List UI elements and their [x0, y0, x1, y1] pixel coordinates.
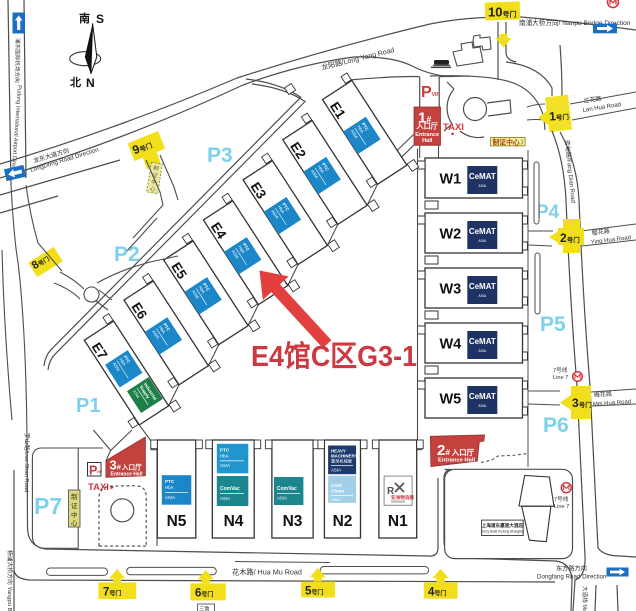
- svg-text:CeMAT: CeMAT: [469, 282, 496, 291]
- svg-text:北: 北: [70, 75, 81, 89]
- svg-text:ComVac: ComVac: [277, 486, 297, 492]
- svg-text:Line 7: Line 7: [554, 504, 569, 510]
- svg-text:HbA: HbA: [165, 485, 174, 490]
- svg-text:亚洲物流展: 亚洲物流展: [391, 494, 414, 501]
- svg-text:E4馆C区G3-1: E4馆C区G3-1: [251, 339, 417, 373]
- svg-text:CeMAT: CeMAT: [469, 337, 496, 346]
- svg-text:Entrance Hall: Entrance Hall: [111, 472, 144, 478]
- svg-text:W3: W3: [440, 282, 462, 298]
- svg-text:CeMAT: CeMAT: [469, 227, 496, 236]
- svg-text:PTC: PTC: [220, 448, 230, 453]
- svg-text:Entrance Hall: Entrance Hall: [438, 458, 475, 464]
- svg-text:杨浦大桥方向 Yangpu Bridge Direction: 杨浦大桥方向 Yangpu Bridge Direction: [6, 550, 14, 611]
- svg-text:上海浦东嘉里大酒店: 上海浦东嘉里大酒店: [482, 522, 524, 529]
- svg-text:ASIA: ASIA: [478, 294, 486, 298]
- svg-text:ASIA: ASIA: [478, 239, 486, 243]
- svg-text:N4: N4: [224, 513, 244, 530]
- svg-text:Chain: Chain: [331, 489, 344, 495]
- svg-text:VIP: VIP: [97, 470, 103, 474]
- svg-text:W4: W4: [440, 337, 462, 353]
- svg-text:S: S: [96, 12, 104, 26]
- svg-text:W5: W5: [440, 392, 462, 408]
- svg-text:P2: P2: [114, 243, 140, 266]
- svg-text:ComVac: ComVac: [220, 486, 240, 492]
- svg-text:ASIA: ASIA: [277, 496, 287, 501]
- svg-text:花木路/ Hua Mu Road: 花木路/ Hua Mu Road: [232, 568, 302, 577]
- svg-text:ASIA: ASIA: [165, 495, 175, 500]
- svg-text:心: 心: [71, 519, 78, 527]
- svg-text:ASIA: ASIA: [478, 404, 486, 408]
- svg-text:TAXI: TAXI: [443, 122, 464, 133]
- svg-text:P7: P7: [34, 493, 62, 519]
- svg-text:CeMAT: CeMAT: [469, 172, 496, 181]
- svg-text:N5: N5: [167, 513, 187, 530]
- svg-text:P1: P1: [76, 395, 100, 417]
- svg-text:Line 7: Line 7: [553, 375, 568, 381]
- svg-text:重型机械展: 重型机械展: [331, 458, 353, 465]
- svg-text:ASIA: ASIA: [220, 496, 230, 501]
- svg-text:罗山路/Luo Shan Road: 罗山路/Luo Shan Road: [23, 433, 31, 492]
- svg-text:N2: N2: [333, 513, 353, 530]
- svg-text:P3: P3: [207, 144, 233, 167]
- svg-text:P5: P5: [540, 313, 566, 336]
- svg-text:HbA: HbA: [220, 454, 229, 459]
- svg-text:P4: P4: [536, 202, 560, 223]
- svg-text:Hall: Hall: [422, 138, 433, 144]
- svg-text:制: 制: [71, 492, 78, 501]
- svg-text:W2: W2: [440, 227, 462, 243]
- svg-text:P6: P6: [543, 414, 569, 437]
- svg-text:7号线: 7号线: [553, 366, 568, 374]
- svg-text:Dongfang Road Direction: Dongfang Road Direction: [537, 574, 607, 581]
- svg-text:Asia: Asia: [331, 497, 340, 502]
- svg-text:Cold: Cold: [331, 483, 342, 489]
- svg-text:Kerry Hotel Pudong Shanghai: Kerry Hotel Pudong Shanghai: [481, 530, 523, 534]
- svg-text:制证中心: 制证中心: [493, 137, 520, 146]
- svg-text:ASIA: ASIA: [331, 468, 341, 473]
- svg-text:N: N: [86, 76, 95, 90]
- svg-text:CeMAT: CeMAT: [469, 392, 496, 401]
- svg-text:N3: N3: [283, 513, 303, 530]
- svg-text:PTC: PTC: [165, 479, 175, 484]
- svg-text:ASIA: ASIA: [478, 349, 486, 353]
- svg-text:7号线: 7号线: [554, 495, 569, 503]
- svg-text:东方路方向: 东方路方向: [556, 565, 587, 573]
- svg-text:W1: W1: [440, 172, 462, 188]
- svg-text:证: 证: [71, 502, 78, 510]
- svg-text:N1: N1: [388, 513, 408, 530]
- svg-text:ASIA: ASIA: [220, 463, 230, 468]
- svg-text:中: 中: [71, 510, 78, 519]
- svg-text:南: 南: [79, 11, 90, 25]
- svg-text:大道线 Macro Rd: 大道线 Macro Rd: [581, 586, 589, 611]
- svg-text:ASIA: ASIA: [478, 184, 486, 188]
- svg-text:入口厅: 入口厅: [415, 122, 438, 131]
